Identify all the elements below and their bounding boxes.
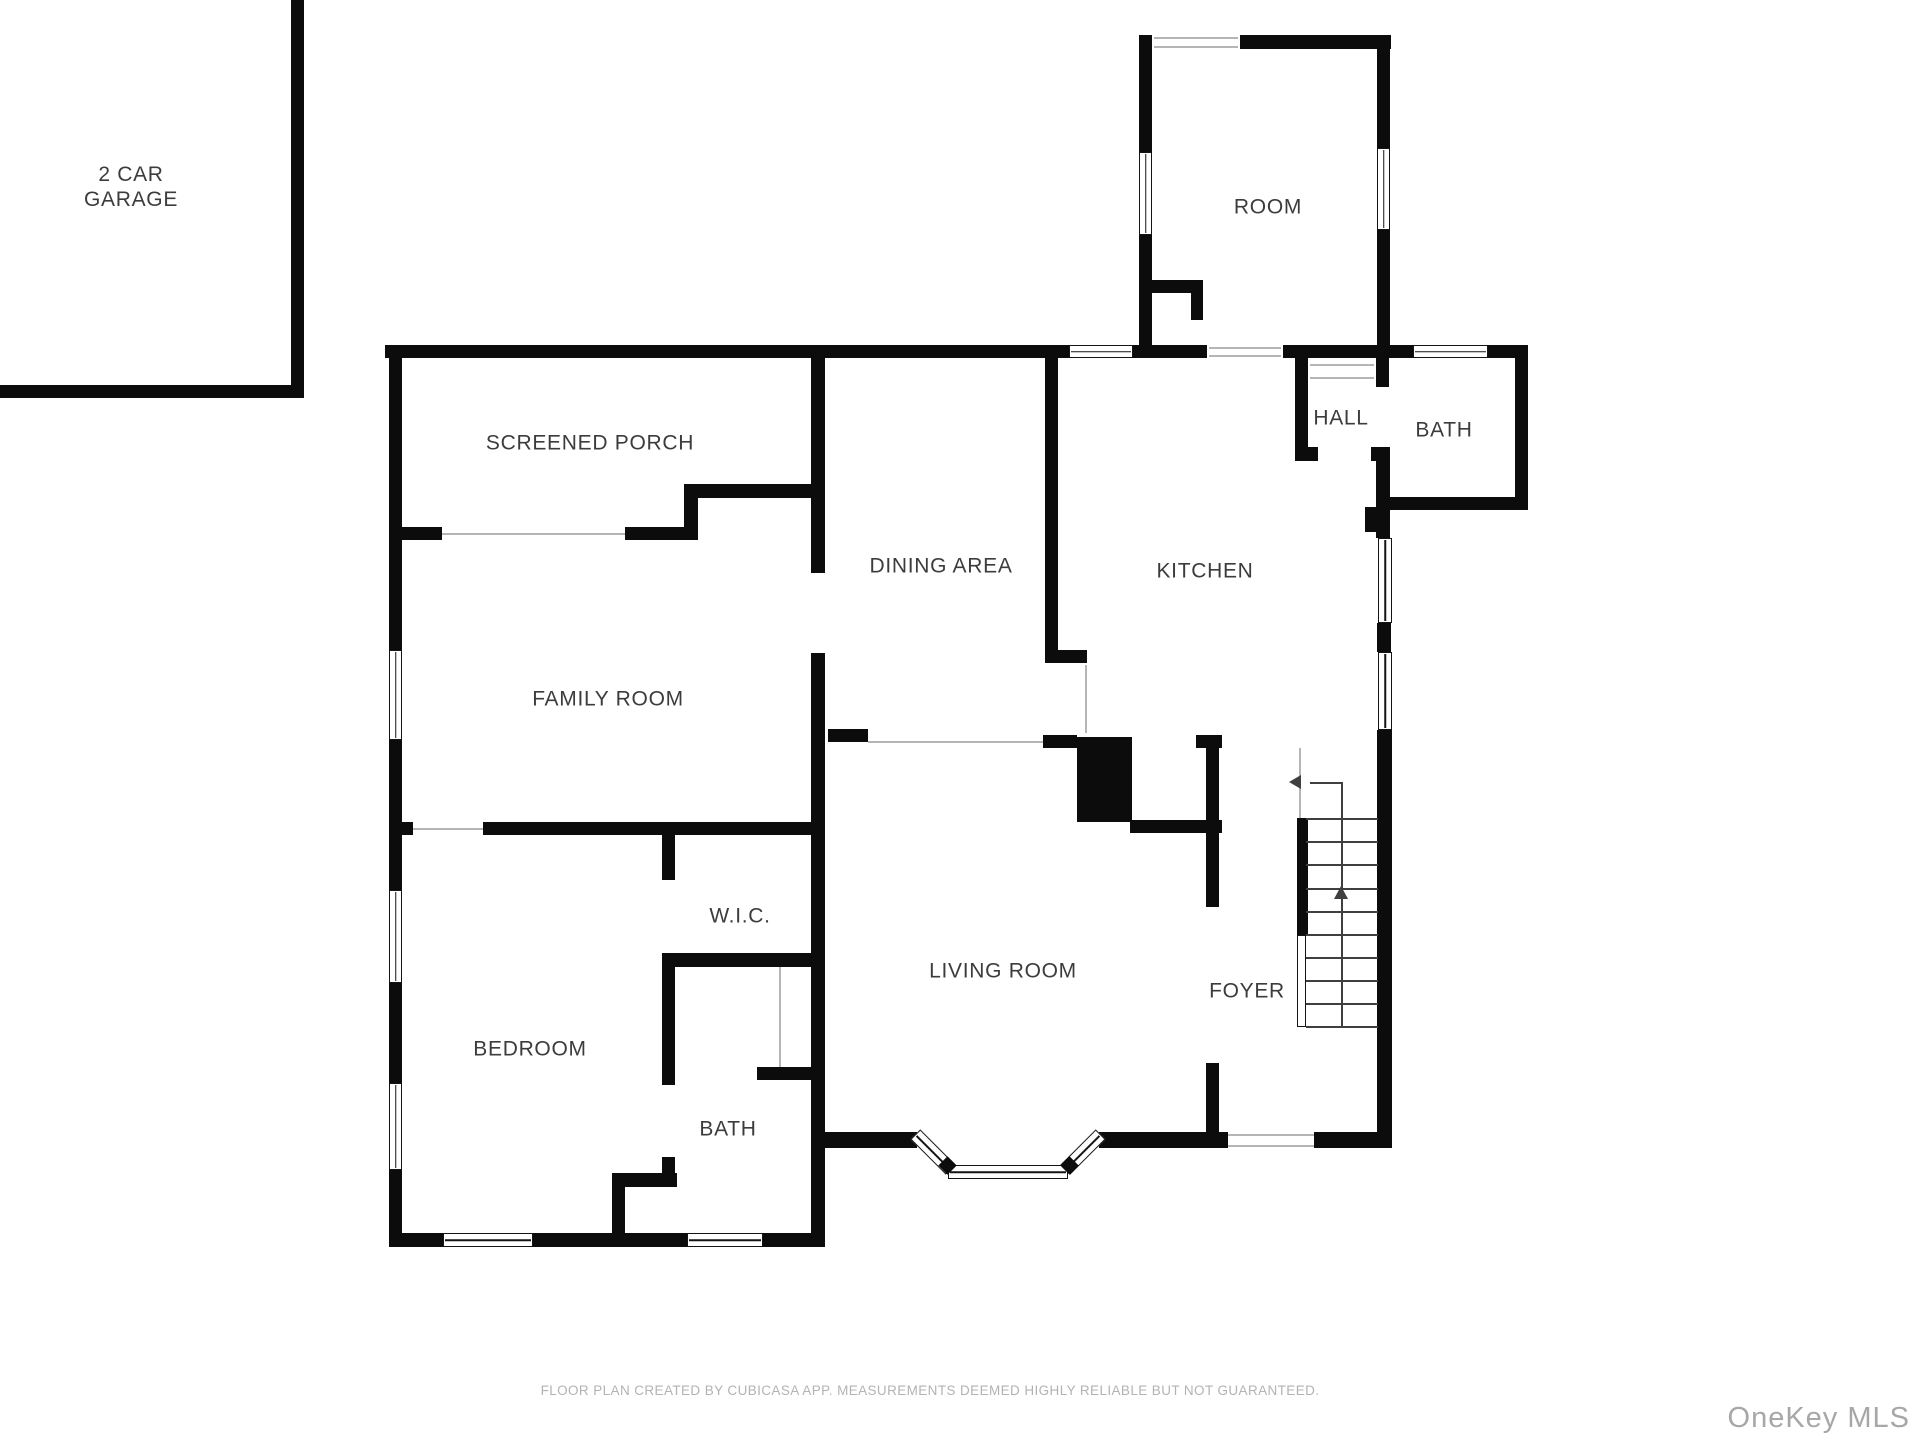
window-glazing <box>1145 154 1147 233</box>
door-opening-threshold <box>1228 1134 1314 1136</box>
wall-segment <box>1206 737 1219 907</box>
window-glazing <box>395 652 397 738</box>
door-opening-threshold <box>1209 355 1281 357</box>
window <box>687 1233 763 1247</box>
door-opening-threshold <box>779 967 781 1067</box>
room-label-hall: HALL <box>1313 407 1368 432</box>
wall-segment <box>811 352 825 573</box>
window-glazing <box>1383 150 1385 228</box>
wall-segment <box>1377 730 1392 1148</box>
wall-segment <box>612 1187 625 1233</box>
door-opening-threshold <box>1154 37 1238 39</box>
wall-segment <box>1045 650 1087 663</box>
window <box>1413 345 1488 358</box>
window <box>389 650 402 740</box>
wall-segment <box>828 729 868 742</box>
wall-segment <box>684 498 698 540</box>
window-glazing <box>395 892 397 981</box>
wall-segment <box>1077 737 1132 822</box>
window-glazing <box>689 1239 761 1241</box>
wall-segment <box>1043 735 1077 748</box>
room-label-bath-lower: BATH <box>699 1118 756 1143</box>
door-opening-threshold <box>1228 1145 1314 1147</box>
window-glazing <box>950 1171 1066 1173</box>
stair-direction-line <box>1341 782 1343 1026</box>
wall-segment <box>662 953 675 1085</box>
wall-segment <box>662 835 675 880</box>
wall-segment <box>1045 352 1058 652</box>
wall-segment <box>1376 358 1389 387</box>
window <box>948 1165 1068 1179</box>
window-glazing <box>1384 654 1386 728</box>
wall-segment <box>1295 447 1318 461</box>
wall-segment <box>1377 623 1391 652</box>
stair-tread-line <box>1306 1026 1378 1028</box>
wall-segment <box>483 822 824 835</box>
window-glazing <box>395 1085 397 1168</box>
wall-segment <box>291 0 304 397</box>
wall-segment <box>1377 230 1390 345</box>
wall-segment <box>1314 1132 1392 1148</box>
wall-segment <box>389 822 413 835</box>
door-opening-threshold <box>413 828 483 830</box>
window <box>1378 538 1392 623</box>
window-glazing <box>445 1239 531 1241</box>
wall-segment <box>533 1233 687 1247</box>
wall-segment <box>385 345 1069 358</box>
wall-segment <box>1371 447 1388 461</box>
window <box>1069 345 1133 358</box>
room-label-foyer: FOYER <box>1209 980 1285 1005</box>
wall-segment <box>1139 280 1203 293</box>
wall-segment <box>1295 345 1308 461</box>
wall-segment <box>1133 345 1207 358</box>
stair-direction-arrowhead-icon <box>1334 886 1348 899</box>
window-glazing <box>1071 351 1131 353</box>
floorplan-canvas: 2 CAR GARAGEROOMSCREENED PORCHDINING ARE… <box>0 0 1920 1440</box>
window <box>389 890 402 983</box>
door-opening-threshold <box>1209 347 1281 349</box>
window <box>443 1233 533 1247</box>
door-opening-threshold <box>1154 46 1238 48</box>
door-opening-threshold <box>868 741 1043 743</box>
window-glazing <box>1415 351 1486 353</box>
window <box>1377 148 1390 230</box>
room-label-dining-area: DINING AREA <box>869 555 1012 580</box>
room-label-bath-upper: BATH <box>1415 419 1472 444</box>
wall-segment <box>389 740 402 890</box>
door-opening-threshold <box>442 533 625 535</box>
wall-segment <box>811 653 825 1247</box>
room-label-bedroom: BEDROOM <box>473 1038 586 1063</box>
stair-direction-line <box>1310 782 1341 784</box>
window <box>1378 652 1392 730</box>
window-glazing <box>1384 540 1386 621</box>
wall-segment <box>389 527 442 540</box>
wall-segment <box>389 1233 443 1247</box>
wall-segment <box>1099 1132 1228 1148</box>
wall-segment <box>763 1233 825 1247</box>
wall-segment <box>389 983 402 1083</box>
room-label-kitchen: KITCHEN <box>1156 560 1253 585</box>
room-label-screened-porch: SCREENED PORCH <box>486 432 694 457</box>
door-opening-threshold <box>1310 364 1374 366</box>
wall-segment <box>1515 345 1528 510</box>
wall-segment <box>1365 507 1388 532</box>
room-label-family-room: FAMILY ROOM <box>532 688 684 713</box>
stair-rail-outline <box>1297 935 1306 1027</box>
wall-segment <box>1388 497 1528 510</box>
wall-segment <box>1139 35 1152 152</box>
wall-segment <box>1297 818 1308 935</box>
wall-segment <box>612 1173 677 1187</box>
window <box>1139 152 1152 235</box>
window <box>389 1083 402 1170</box>
door-opening-threshold <box>1085 665 1087 733</box>
wall-segment <box>662 953 824 967</box>
wall-segment <box>757 1067 824 1080</box>
door-opening-threshold <box>1310 377 1374 379</box>
wall-segment <box>824 1132 917 1148</box>
room-label-room: ROOM <box>1234 196 1302 221</box>
stair-direction-arrowhead-icon <box>1289 775 1301 789</box>
room-label-living-room: LIVING ROOM <box>929 960 1077 985</box>
wall-segment <box>0 385 304 398</box>
wall-segment <box>1377 35 1390 148</box>
wall-segment <box>389 345 402 650</box>
wall-segment <box>684 484 824 498</box>
wall-segment <box>1191 293 1203 320</box>
room-label-garage: 2 CAR GARAGE <box>84 163 178 213</box>
watermark-onekey-mls: OneKey MLS <box>1728 1402 1910 1435</box>
room-label-wic: W.I.C. <box>709 905 770 930</box>
wall-segment <box>1240 35 1391 49</box>
disclaimer-text: FLOOR PLAN CREATED BY CUBICASA APP. MEAS… <box>330 1383 1530 1398</box>
